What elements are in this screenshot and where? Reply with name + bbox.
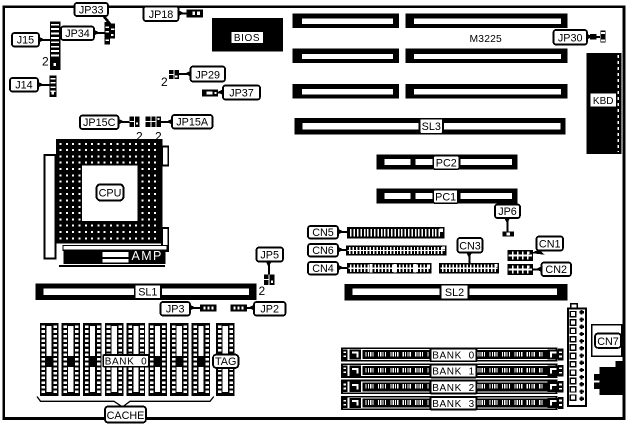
svg-text:CN7: CN7 (597, 336, 619, 348)
svg-text:J14: J14 (15, 80, 32, 92)
svg-text:JP37: JP37 (229, 88, 254, 100)
svg-text:PC1: PC1 (435, 191, 456, 203)
svg-text:JP34: JP34 (65, 28, 90, 40)
svg-text:JP5: JP5 (260, 250, 279, 262)
svg-text:PC2: PC2 (436, 157, 457, 169)
svg-text:JP15A: JP15A (176, 117, 209, 129)
svg-text:JP6: JP6 (498, 206, 517, 218)
svg-text:CN2: CN2 (545, 264, 567, 276)
svg-text:SL3: SL3 (422, 121, 441, 133)
svg-text:SL2: SL2 (445, 287, 464, 299)
svg-text:CN3: CN3 (459, 240, 481, 252)
svg-text:BANK 3: BANK 3 (432, 399, 475, 410)
svg-text:2: 2 (259, 284, 266, 298)
svg-text:JP2: JP2 (260, 304, 279, 316)
svg-text:2: 2 (161, 75, 168, 89)
svg-text:BANK 0: BANK 0 (105, 356, 148, 367)
svg-text:BIOS: BIOS (234, 33, 260, 44)
svg-text:JP15C: JP15C (83, 117, 116, 129)
svg-text:JP18: JP18 (149, 9, 174, 21)
svg-text:JP3: JP3 (166, 304, 185, 316)
svg-text:CN1: CN1 (539, 239, 561, 251)
svg-text:BANK 2: BANK 2 (432, 383, 475, 394)
svg-text:TAG: TAG (215, 356, 236, 368)
svg-text:CPU: CPU (99, 188, 122, 200)
svg-text:JP33: JP33 (79, 4, 104, 16)
svg-text:SL1: SL1 (138, 287, 157, 299)
svg-text:JP30: JP30 (558, 32, 583, 44)
svg-text:BANK 1: BANK 1 (432, 367, 475, 378)
svg-text:KBD: KBD (593, 96, 614, 107)
svg-text:CN4: CN4 (312, 263, 334, 275)
svg-text:CACHE: CACHE (107, 410, 145, 422)
svg-text:BANK 0: BANK 0 (432, 351, 475, 362)
svg-text:2: 2 (42, 55, 49, 69)
svg-text:JP29: JP29 (195, 69, 220, 81)
svg-text:M3225: M3225 (470, 34, 503, 45)
svg-text:J15: J15 (17, 35, 34, 47)
svg-text:CN6: CN6 (312, 245, 334, 257)
svg-text:AMP: AMP (132, 249, 163, 263)
svg-text:CN5: CN5 (312, 227, 334, 239)
